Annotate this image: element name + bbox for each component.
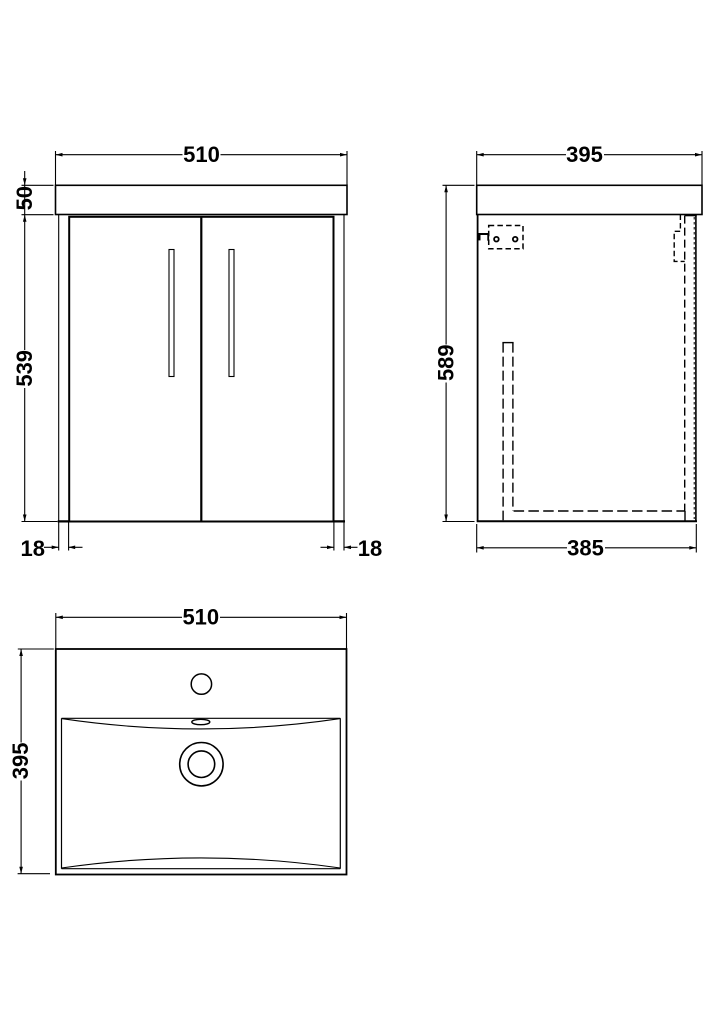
svg-text:510: 510: [182, 605, 219, 630]
svg-text:18: 18: [21, 536, 45, 561]
svg-text:18: 18: [358, 536, 382, 561]
svg-text:395: 395: [566, 142, 603, 167]
svg-text:539: 539: [12, 350, 37, 387]
svg-text:395: 395: [8, 743, 33, 780]
svg-text:589: 589: [433, 344, 458, 381]
svg-text:385: 385: [567, 536, 604, 561]
svg-text:510: 510: [183, 142, 220, 167]
